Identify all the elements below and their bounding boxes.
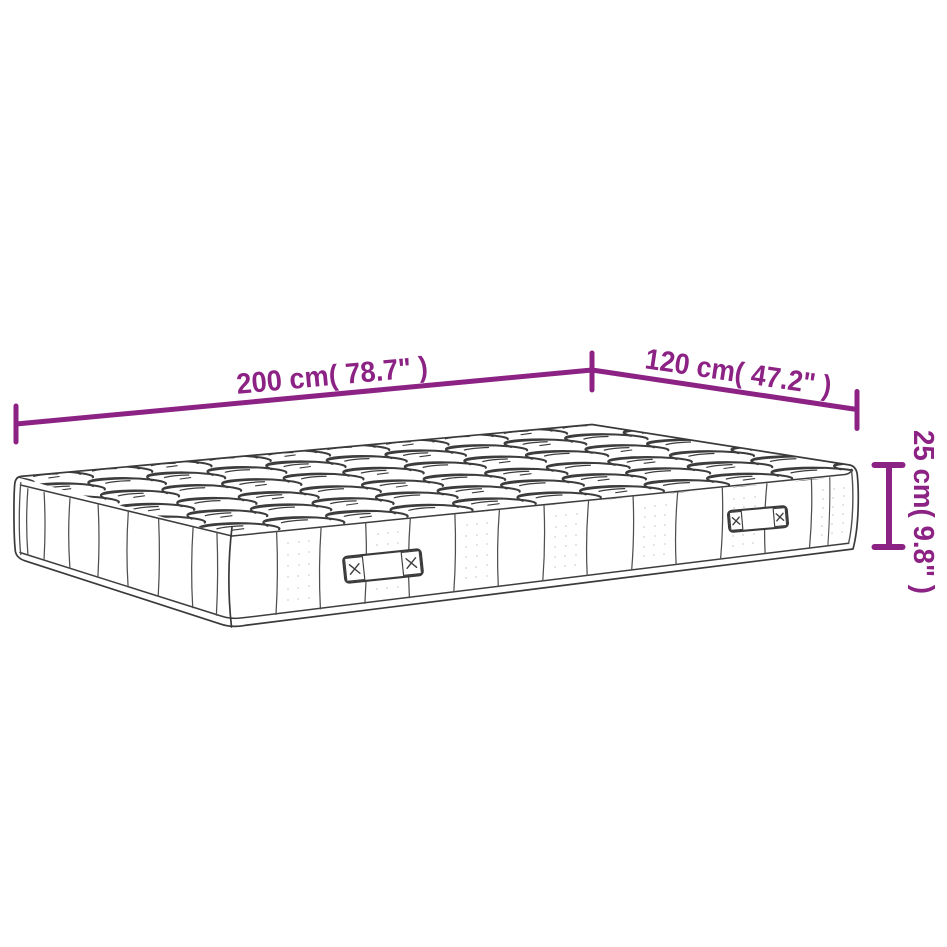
svg-text:25 cm( 9.8" ): 25 cm( 9.8" ) (907, 430, 939, 594)
